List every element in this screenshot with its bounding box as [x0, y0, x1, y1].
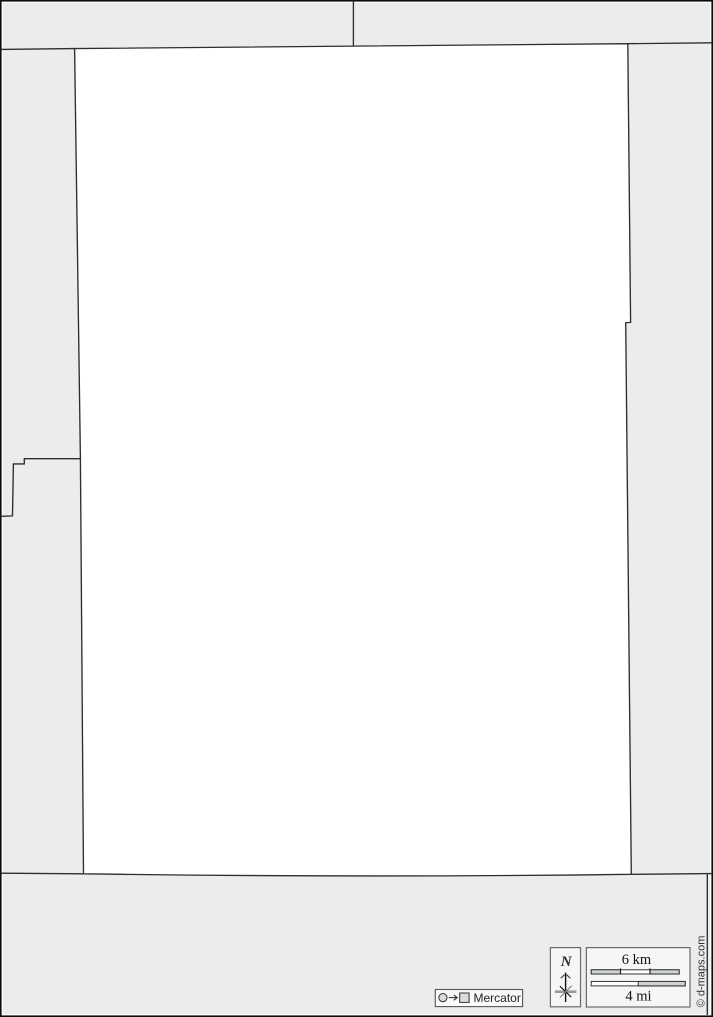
svg-text:N: N: [560, 954, 573, 970]
svg-text:© d-maps.com: © d-maps.com: [696, 936, 708, 1008]
svg-text:4 mi: 4 mi: [625, 988, 651, 1004]
svg-text:Mercator: Mercator: [474, 991, 521, 1005]
svg-text:6 km: 6 km: [622, 952, 652, 968]
